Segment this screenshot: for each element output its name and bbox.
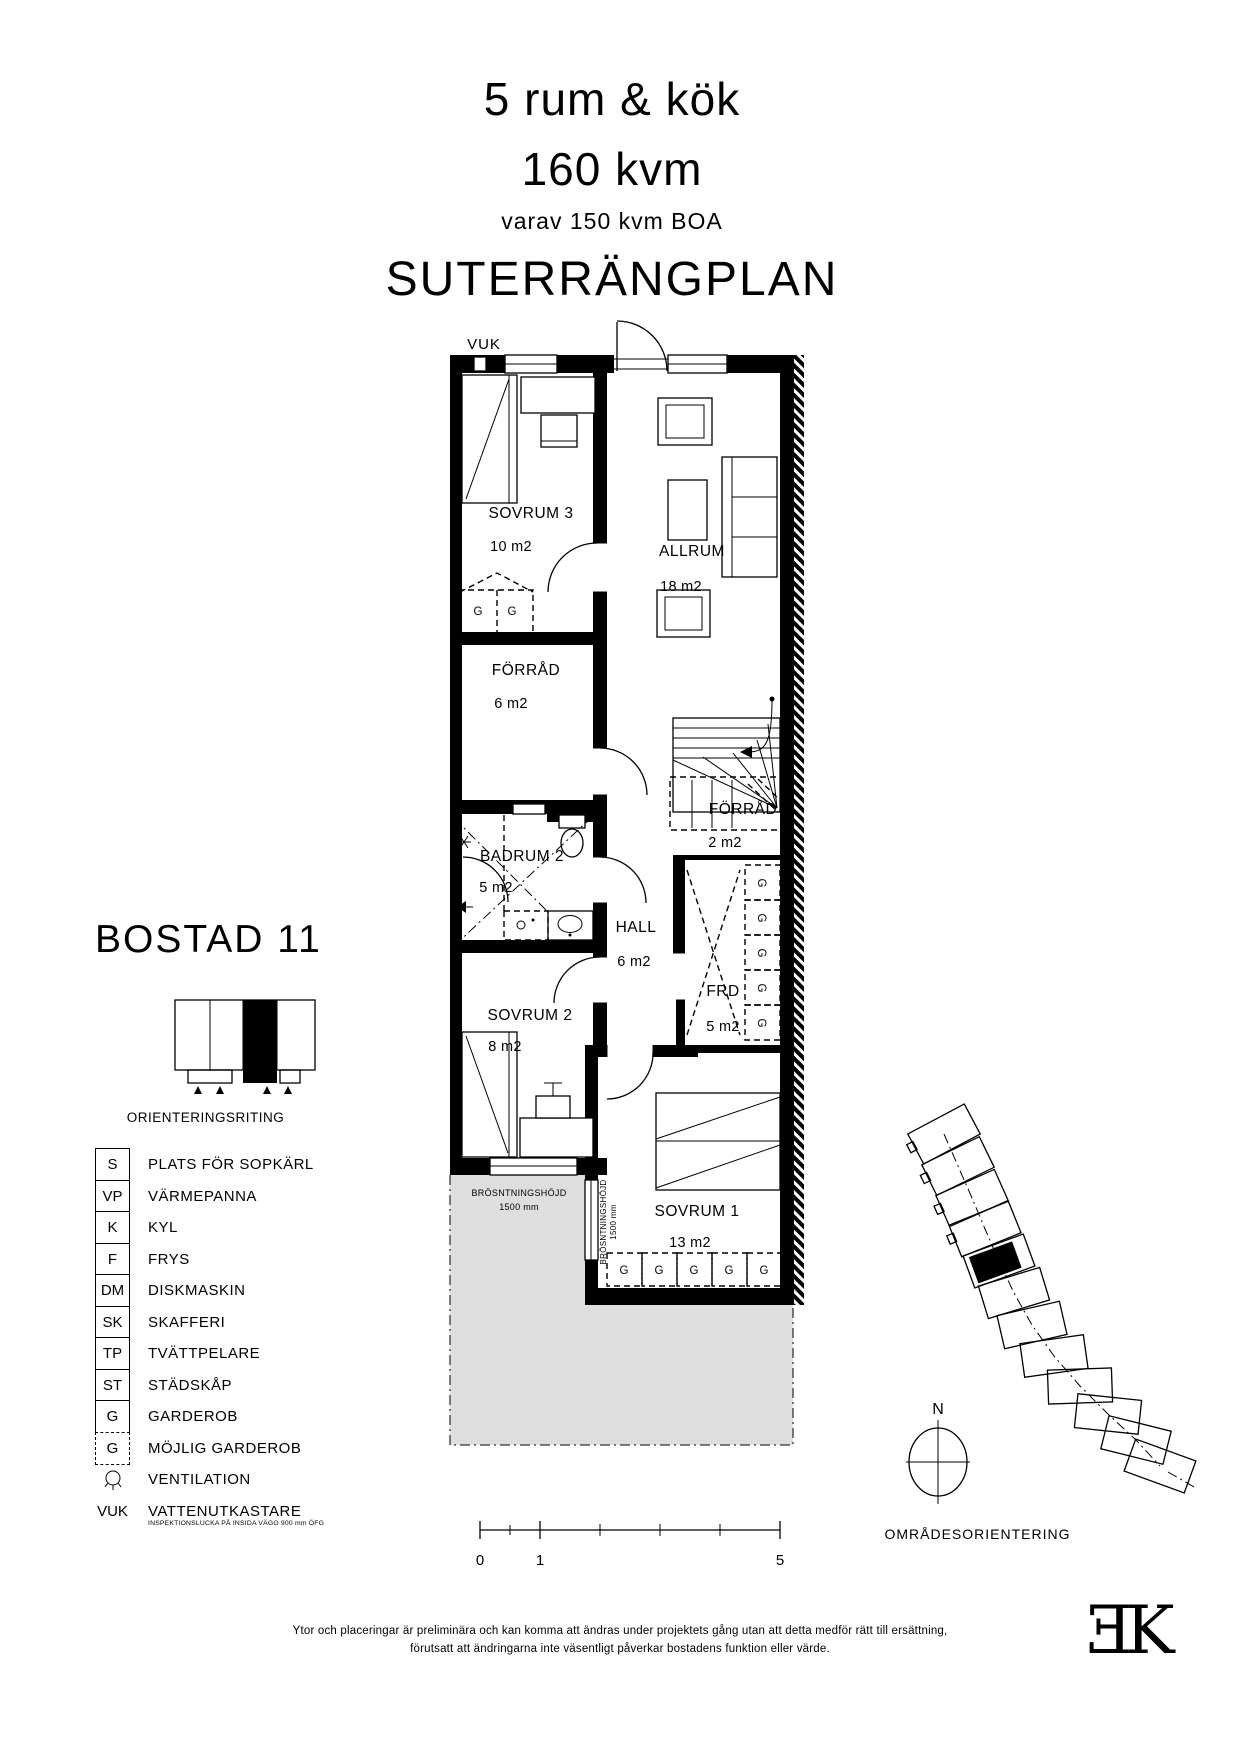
room-area: 18 m2	[660, 579, 702, 595]
vuk-label: VUK	[467, 336, 501, 353]
legend-row: VUK VATTENUTKASTARE INSPEKTIONSLUCKA PÅ …	[95, 1495, 314, 1528]
svg-text:G: G	[755, 879, 767, 888]
bed-sovrum3	[462, 375, 517, 503]
title-area: 160 kvm	[0, 142, 1224, 196]
legend-label: DISKMASKIN	[148, 1282, 246, 1299]
room-name: HALL	[616, 919, 657, 936]
terrace-areas	[450, 1175, 793, 1445]
legend-label: VATTENUTKASTARE	[148, 1503, 301, 1520]
svg-text:G: G	[508, 606, 517, 618]
legend-row: DM DISKMASKIN	[95, 1274, 314, 1307]
legend-row: VENTILATION	[95, 1463, 314, 1496]
legend-symbol: G	[95, 1400, 130, 1433]
room-area: 8 m2	[488, 1039, 521, 1055]
site-units	[902, 1104, 1195, 1493]
orientation-drawing	[170, 995, 320, 1100]
svg-text:G: G	[725, 1265, 734, 1277]
site-plan: N	[860, 1080, 1200, 1550]
scale-bar: 0 1 5	[455, 1500, 805, 1580]
legend-row: G MÖJLIG GARDEROB	[95, 1432, 314, 1465]
room-area: 2 m2	[708, 835, 741, 851]
disclaimer-line: Ytor och placeringar är preliminära och …	[0, 1623, 1240, 1641]
legend-symbol: F	[95, 1243, 130, 1276]
svg-text:G: G	[655, 1265, 664, 1277]
legend-label: VENTILATION	[148, 1471, 251, 1488]
entry-door-swing	[617, 321, 667, 371]
legend-label: GARDEROB	[148, 1408, 238, 1425]
svg-text:G: G	[620, 1265, 629, 1277]
legend-row: SK SKAFFERI	[95, 1306, 314, 1339]
sill-note-value: 1500 mm	[609, 1204, 618, 1239]
room-name: FRD	[706, 983, 739, 1000]
site-centerline	[944, 1134, 1160, 1466]
legend-symbol: K	[95, 1211, 130, 1244]
site-highlighted-unit	[969, 1241, 1022, 1283]
disclaimer: Ytor och placeringar är preliminära och …	[0, 1623, 1240, 1658]
room-name: ALLRUM	[659, 543, 725, 560]
title-boa: varav 150 kvm BOA	[0, 208, 1224, 235]
highlighted-unit	[243, 1000, 277, 1083]
legend-symbol-dashed: G	[95, 1432, 130, 1465]
sill-note-value: 1500 mm	[499, 1202, 539, 1212]
svg-text:G: G	[755, 914, 767, 923]
legend-row: TP TVÄTTPELARE	[95, 1337, 314, 1370]
legend-symbol: VP	[95, 1180, 130, 1213]
legend-row: K KYL	[95, 1211, 314, 1244]
legend-note: INSPEKTIONSLUCKA PÅ INSIDA VÄGG 900 mm Ö…	[148, 1520, 324, 1527]
ventilation-icon	[100, 1467, 126, 1493]
company-logo: ƎK	[1086, 1592, 1166, 1669]
coffee-table-allrum	[668, 480, 707, 540]
room-name: SOVRUM 3	[489, 505, 574, 522]
svg-text:G: G	[474, 606, 483, 618]
legend-label: SKAFFERI	[148, 1314, 225, 1331]
room-name: SOVRUM 1	[655, 1203, 740, 1220]
room-name: FÖRRÅD	[709, 800, 777, 818]
legend-label: MÖJLIG GARDEROB	[148, 1440, 301, 1457]
legend-row: VP VÄRMEPANNA	[95, 1180, 314, 1213]
sink-badrum2	[548, 911, 593, 940]
room-area: 10 m2	[490, 539, 532, 555]
title-rooms: 5 rum & kök	[0, 72, 1224, 126]
legend-symbol: ST	[95, 1369, 130, 1402]
floorplan-sheet: 5 rum & kök 160 kvm varav 150 kvm BOA SU…	[0, 0, 1240, 1754]
scale-zero: 0	[476, 1552, 484, 1569]
legend-row: ST STÄDSKÅP	[95, 1369, 314, 1402]
disclaimer-line: förutsatt att ändringarna inte väsentlig…	[0, 1641, 1240, 1659]
room-name: BADRUM 2	[480, 848, 564, 865]
legend-row: S PLATS FÖR SOPKÄRL	[95, 1148, 314, 1181]
retaining-wall-hatch	[794, 355, 804, 1305]
room-area: 13 m2	[669, 1235, 711, 1251]
svg-text:G: G	[755, 1019, 767, 1028]
scale-five: 5	[776, 1552, 784, 1569]
legend-symbol: VUK	[95, 1495, 130, 1528]
legend-symbol: DM	[95, 1274, 130, 1307]
furniture	[454, 375, 780, 1190]
legend-label: TVÄTTPELARE	[148, 1345, 260, 1362]
legend-label: VÄRMEPANNA	[148, 1188, 257, 1205]
svg-text:G: G	[755, 949, 767, 958]
unit-label: BOSTAD 11	[95, 918, 322, 962]
washer-position-badrum2	[504, 911, 548, 940]
legend-row: F FRYS	[95, 1243, 314, 1276]
room-area: 5 m2	[479, 880, 512, 896]
legend-label: FRYS	[148, 1251, 190, 1268]
north-label: N	[932, 1401, 944, 1418]
dresser-sovrum2	[520, 1083, 593, 1157]
room-name: FÖRRÅD	[492, 661, 560, 679]
legend-label: PLATS FÖR SOPKÄRL	[148, 1156, 314, 1173]
orientation-caption: ORIENTERINGSRITING	[108, 1110, 303, 1125]
sill-note-label: BRÖSNTNINGSHÖJD	[599, 1180, 608, 1265]
legend-symbol: S	[95, 1148, 130, 1181]
svg-text:G: G	[690, 1265, 699, 1277]
legend-symbol: SK	[95, 1306, 130, 1339]
wardrobe-row-sovrum1: G G G G G	[607, 1253, 782, 1286]
floor-plan: G G G G G G G	[440, 290, 820, 1460]
room-area: 5 m2	[706, 1019, 739, 1035]
room-area: 6 m2	[617, 954, 650, 970]
site-caption: OMRÅDESORIENTERING	[855, 1526, 1100, 1542]
entrance-arrows	[194, 1086, 292, 1094]
desk-sovrum3	[521, 377, 595, 413]
room-name: SOVRUM 2	[488, 1007, 573, 1024]
wardrobe-column-frd: G G G G G	[687, 865, 780, 1040]
svg-text:G: G	[755, 984, 767, 993]
armchair-allrum-2	[657, 590, 710, 637]
room-area: 6 m2	[494, 696, 527, 712]
north-compass: N	[906, 1401, 970, 1504]
double-bed-sovrum1	[656, 1093, 780, 1190]
legend-symbol: TP	[95, 1337, 130, 1370]
sill-note-label: BRÖSNTNINGSHÖJD	[471, 1188, 566, 1198]
chair-sovrum3	[541, 415, 577, 447]
legend: S PLATS FÖR SOPKÄRL VP VÄRMEPANNA K KYL …	[95, 1148, 314, 1528]
legend-label: STÄDSKÅP	[148, 1377, 232, 1394]
sofa-allrum	[722, 457, 777, 577]
legend-row: G GARDEROB	[95, 1400, 314, 1433]
wall-niche-badrum2	[513, 804, 545, 814]
armchair-allrum-1	[658, 398, 712, 445]
scale-one: 1	[536, 1552, 544, 1569]
vuk-tap-marker	[474, 357, 486, 371]
possible-wardrobe-sovrum3: G G	[460, 573, 533, 632]
legend-label: KYL	[148, 1219, 178, 1236]
svg-text:G: G	[760, 1265, 769, 1277]
